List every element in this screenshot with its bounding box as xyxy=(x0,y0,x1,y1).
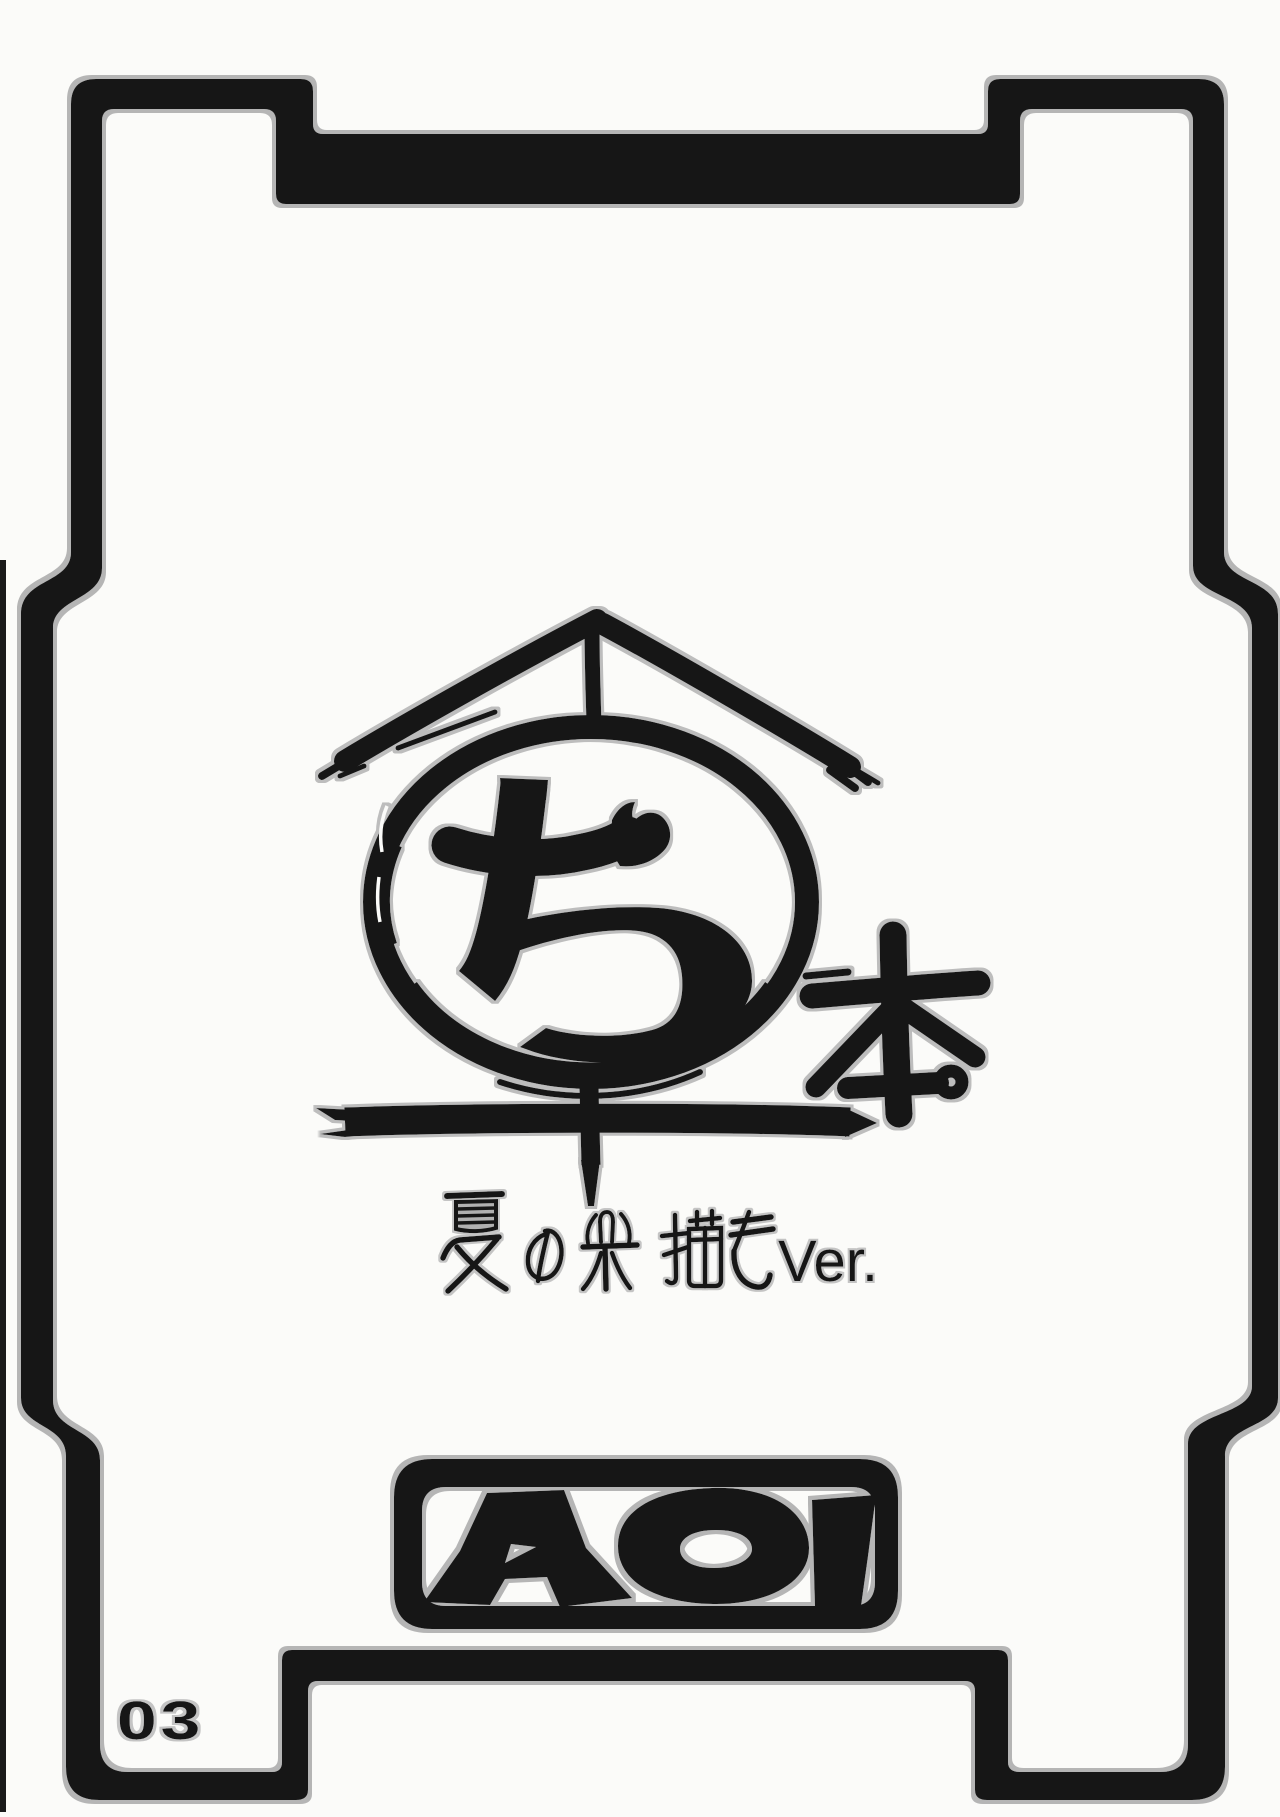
svg-text:03: 03 xyxy=(117,1691,204,1751)
svg-text:Ver.: Ver. xyxy=(778,1229,878,1294)
